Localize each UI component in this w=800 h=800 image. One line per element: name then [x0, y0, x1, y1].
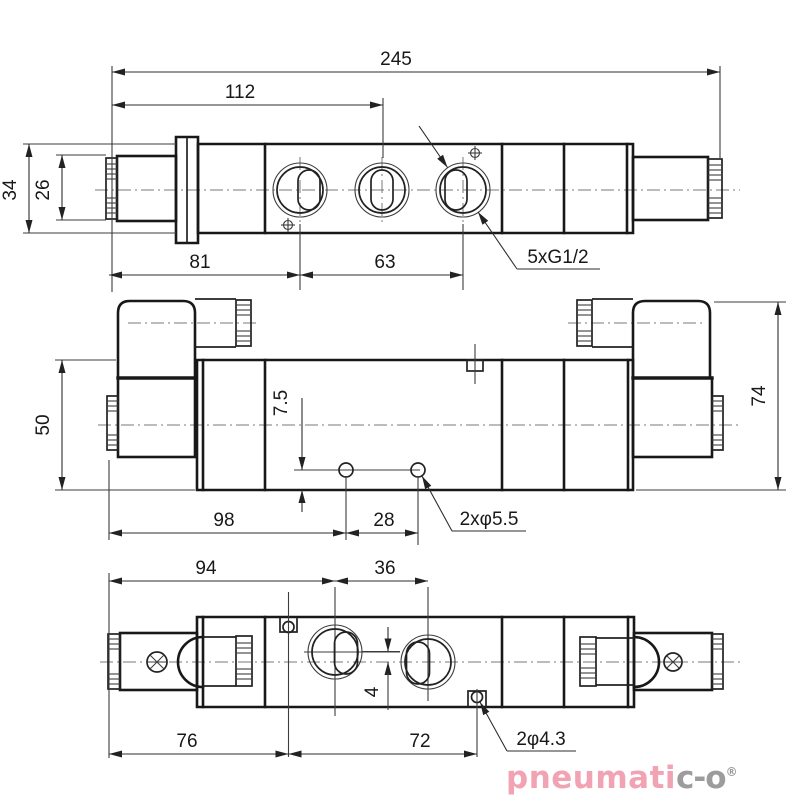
front-view-dimensions: 50 74 7.5 98 28 2xφ5.5 — [33, 302, 786, 545]
dim-left-to-first-port: 81 — [189, 252, 210, 273]
dim-body-width: 34 — [0, 179, 21, 201]
dim-body-height: 50 — [33, 414, 54, 435]
left-connector-plug — [118, 301, 195, 377]
dim-left-to-first-hole: 98 — [213, 510, 234, 531]
label-bottom-holes: 2φ4.3 — [516, 729, 565, 750]
dim-port-offset: 4 — [362, 686, 383, 697]
dim-left-to-middle-port: 112 — [225, 82, 255, 103]
drawing-canvas: 245 112 34 26 81 63 5xG1/2 — [0, 0, 800, 800]
top-view: 245 112 34 26 81 63 5xG1/2 — [0, 49, 740, 292]
dim-hole-spacing-bottom: 72 — [409, 731, 430, 752]
brand-logo-secondary: c-o — [676, 760, 726, 796]
dim-left-to-first-hole-bottom: 76 — [176, 731, 197, 752]
dim-total-height: 74 — [749, 385, 770, 407]
top-view-left-solenoid — [106, 156, 176, 221]
top-view-dimensions: 245 112 34 26 81 63 5xG1/2 — [0, 49, 720, 292]
dim-left-to-first-port-bottom: 94 — [195, 558, 217, 579]
top-view-right-solenoid — [633, 157, 722, 220]
dim-hole-offset: 7.5 — [271, 390, 292, 416]
dim-first-to-third-port: 63 — [374, 252, 395, 273]
label-front-holes: 2xφ5.5 — [460, 509, 519, 530]
label-ports-thread: 5xG1/2 — [527, 247, 588, 268]
right-connector-plug — [633, 301, 710, 377]
front-view-mounting-holes — [294, 463, 425, 477]
front-view-valve-body — [197, 344, 633, 490]
front-view: 50 74 7.5 98 28 2xφ5.5 — [33, 299, 786, 545]
dim-total-length: 245 — [380, 49, 412, 70]
serration-right — [708, 165, 722, 213]
brand-logo: pneumatic-o® — [506, 760, 800, 796]
dim-port-spacing-bottom: 36 — [374, 558, 395, 579]
bottom-view: 94 36 4 76 72 2φ4.3 — [100, 558, 740, 758]
brand-logo-primary: pneumati — [506, 760, 676, 796]
registered-trademark-icon: ® — [726, 765, 738, 779]
valve-technical-drawing: 245 112 34 26 81 63 5xG1/2 — [0, 0, 800, 800]
dim-hole-spacing: 28 — [373, 510, 394, 531]
dim-solenoid-width: 26 — [33, 179, 54, 200]
